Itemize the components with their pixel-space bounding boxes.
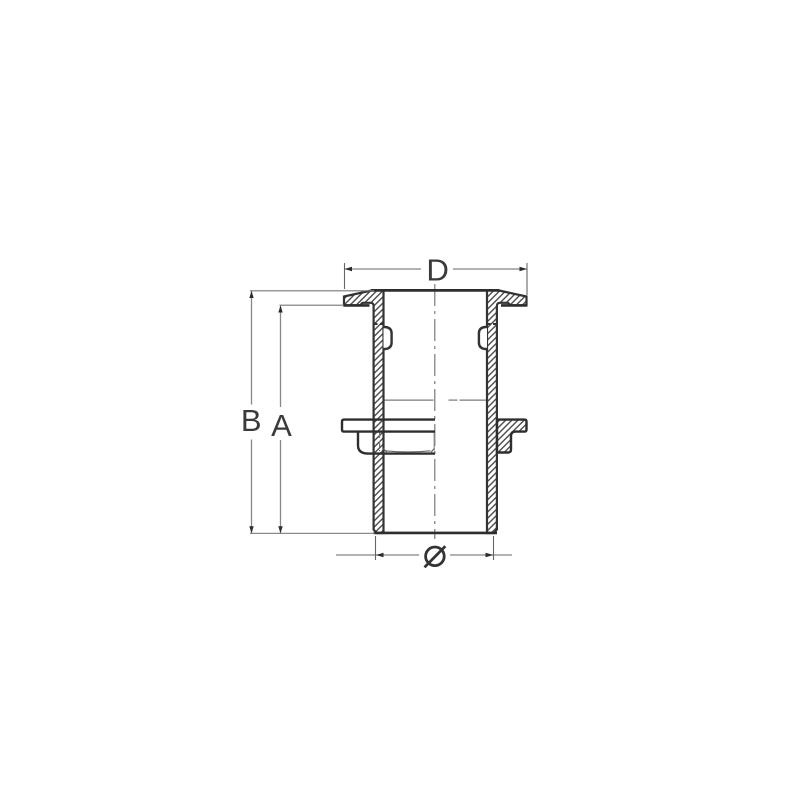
svg-text:A: A <box>271 408 292 443</box>
svg-text:D: D <box>426 252 449 287</box>
svg-text:B: B <box>241 403 262 438</box>
